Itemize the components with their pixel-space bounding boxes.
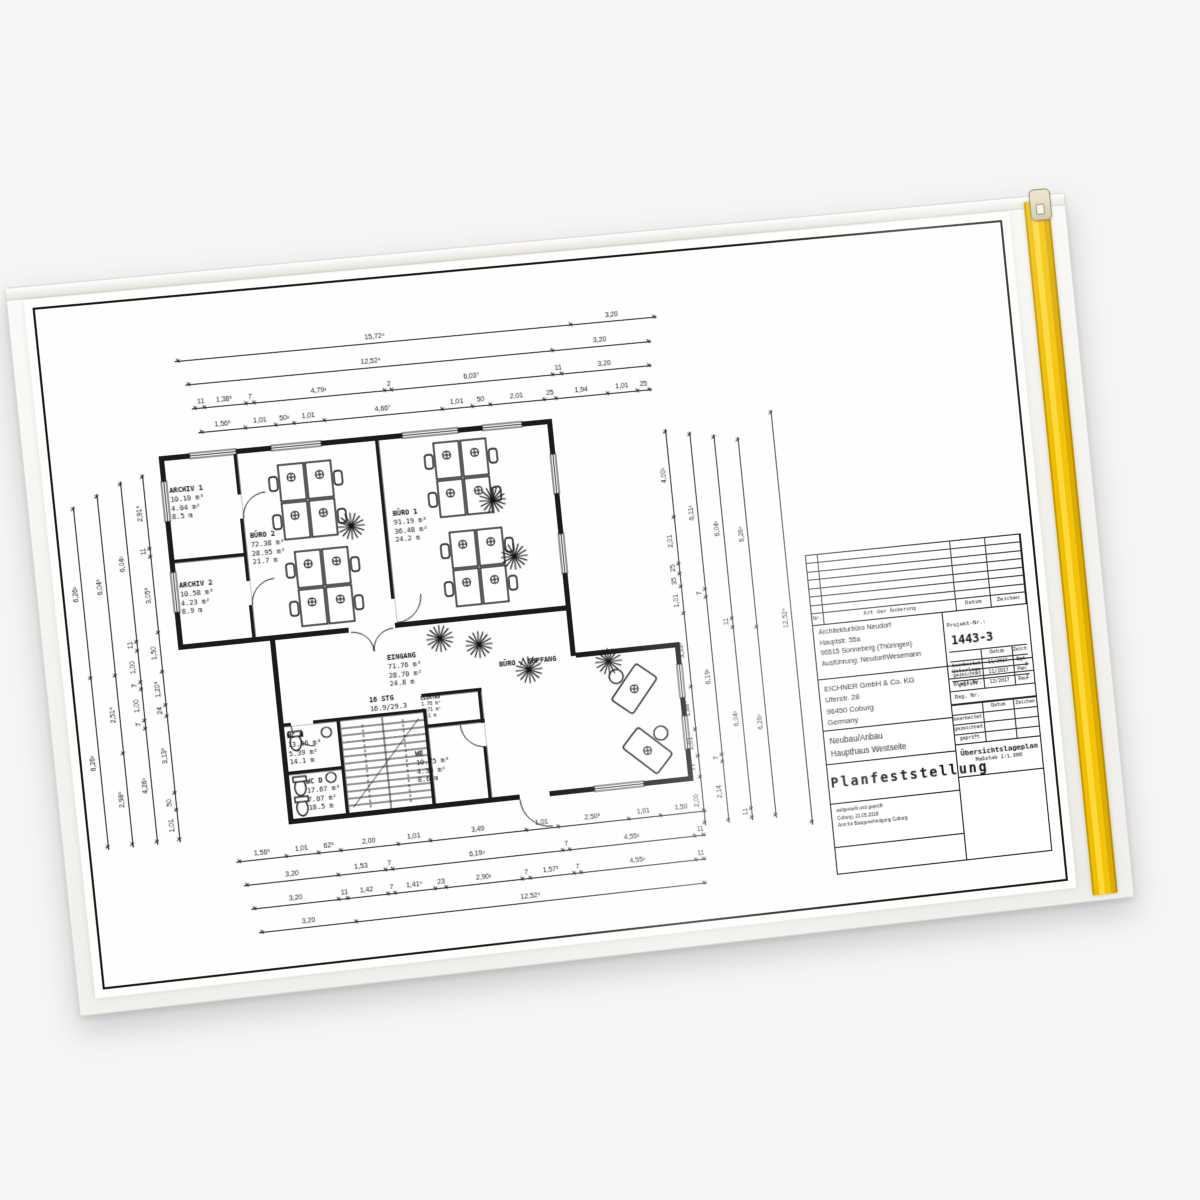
dim-tick: × — [559, 847, 566, 855]
dim-tick: × — [200, 404, 207, 412]
dim-tick: × — [70, 506, 78, 513]
dim-tick: × — [337, 847, 344, 855]
dim-tick: × — [646, 386, 653, 394]
dim-label: 1,01 — [528, 819, 555, 830]
dim-tick: × — [549, 371, 556, 379]
dim-tick: × — [87, 675, 95, 682]
reception-desks — [595, 649, 686, 779]
dim-tick: × — [700, 855, 707, 863]
dim-label: 1,01 — [687, 733, 697, 754]
approvals-table: Datum Zeichen bearbeitet 11/2017 Bgt gez… — [949, 644, 1030, 691]
project-number-value: 1443-3 — [951, 630, 994, 647]
dim-label: 50 — [474, 397, 487, 406]
dim-label: 1,01 — [630, 808, 657, 819]
plan-sheet: ARCHIV 1 10.10 m³ 4.04 m² 8.5 m ARCHIV 2… — [23, 211, 1076, 998]
dim-tick: × — [645, 362, 652, 370]
dim-tick: × — [710, 434, 718, 441]
dim-tick: × — [695, 752, 703, 759]
dim-tick: × — [725, 817, 733, 824]
dim-tick: × — [191, 405, 198, 413]
dim-tick: × — [153, 838, 161, 845]
dim-tick: × — [772, 811, 780, 818]
dim-tick: × — [767, 409, 775, 416]
dim-tick: × — [335, 896, 342, 904]
dim-tick: × — [112, 672, 120, 679]
dim-tick: × — [134, 648, 142, 655]
dim-tick: × — [174, 357, 181, 365]
plan-protection-sleeve: ARCHIV 1 10.10 m³ 4.04 m² 8.5 m ARCHIV 2… — [4, 193, 1134, 1017]
dim-tick: × — [718, 751, 726, 758]
dim-tick: × — [526, 875, 533, 883]
room-label-eingang: EINGANG 71.76 m³ 28.70 m² 24.8 m — [387, 651, 424, 690]
dim-tick: × — [321, 417, 328, 425]
dim-tick: × — [142, 725, 150, 732]
dim-tick: × — [387, 386, 394, 394]
dim-tick: × — [558, 370, 565, 378]
dim-tick: × — [139, 474, 147, 481]
room-label-archiv2: ARCHIV 2 10.58 m³ 4.23 m² 8.9 m — [179, 578, 216, 617]
dim-tick: × — [700, 831, 707, 839]
dim-tick: × — [117, 481, 125, 488]
dim-label: 1,01 — [288, 845, 315, 856]
dim-tick: × — [729, 624, 737, 631]
dim-tick: × — [198, 429, 205, 437]
room-label-wcd: WC D 17.67 m³ 7.07 m² 18.5 m — [306, 775, 343, 814]
dim-tick: × — [120, 750, 128, 757]
room-label-buero2: BÜRO 2 72.38 m³ 28.95 m² 21.7 m — [250, 529, 287, 568]
dim-tick: × — [650, 313, 657, 321]
dim-tick: × — [243, 882, 250, 890]
dim-tick: × — [703, 594, 711, 601]
dim-tick: × — [242, 424, 249, 432]
dim-tick: × — [432, 885, 439, 893]
dim-tick: × — [137, 679, 145, 686]
dim-label: 1,20⁸ — [154, 675, 165, 703]
dim-label: 1,00 — [133, 693, 144, 719]
dim-label: 1,01 — [610, 383, 635, 394]
dim-tick: × — [155, 629, 163, 636]
dim-label: 1,01 — [168, 814, 179, 838]
dim-tick: × — [392, 890, 399, 898]
dim-tick: × — [541, 396, 548, 404]
dim-tick: × — [688, 683, 696, 690]
title-block: Nr. Art der Änderung Datum Zeichen Archi… — [805, 533, 1053, 874]
project-number-label: Projekt-Nr.: — [947, 619, 987, 630]
dim-tick: × — [381, 866, 388, 874]
dim-label: 77 — [690, 759, 700, 775]
dim-label: 1,01 — [673, 590, 683, 611]
dim-label: 50² — [278, 415, 291, 424]
room-label-archiv1: ARCHIV 1 10.10 m³ 4.04 m² 8.5 m — [169, 484, 206, 523]
dim-tick: × — [662, 428, 670, 435]
dim-tick: × — [93, 493, 101, 500]
dim-tick: × — [680, 610, 688, 617]
room-label-we: WE 10.75 m³ 4.30 m² 8.6 m — [415, 747, 451, 786]
dim-tick: × — [141, 718, 149, 725]
dim-tick: × — [236, 858, 243, 866]
dim-tick: × — [697, 774, 705, 781]
dim-tick: × — [625, 816, 632, 824]
dim-tick: × — [692, 856, 699, 864]
dim-tick: × — [162, 702, 170, 709]
dim-tick: × — [159, 669, 167, 676]
dim-tick: × — [645, 338, 652, 346]
dim-tick: × — [686, 431, 694, 438]
project-number-block: Projekt-Nr.:1443-3 Datum Zeichen bearbei… — [941, 603, 1032, 667]
dim-tick: × — [570, 870, 577, 878]
dim-tick: × — [283, 853, 290, 861]
dim-tick: × — [729, 615, 737, 622]
dim-tick: × — [675, 560, 683, 567]
dim-tick: × — [552, 395, 559, 403]
dim-tick: × — [163, 713, 171, 720]
dim-tick: × — [104, 844, 112, 851]
dim-tick: × — [129, 841, 137, 848]
dim-tick: × — [567, 321, 574, 329]
dim-tick: × — [250, 399, 257, 407]
dim-label: 1,01 — [247, 417, 272, 428]
dim-tick: × — [734, 436, 742, 443]
dim-tick: × — [185, 381, 192, 389]
dim-tick: × — [577, 869, 584, 877]
dim-tick: × — [242, 400, 249, 408]
dim-tick: × — [748, 805, 756, 812]
dim-tick: × — [344, 895, 351, 903]
dim-tick: × — [251, 905, 258, 913]
dim-tick: × — [384, 890, 391, 898]
dim-tick: × — [701, 879, 708, 887]
dim-tick: × — [258, 929, 265, 937]
room-label-elektro: ELEKTRO 1.78 m³ 0.71 m² 1.1 m — [421, 695, 443, 721]
room-label-wch: WC H 13.46 m³ 5.39 m² 14.1 m — [287, 729, 324, 768]
dim-tick: × — [701, 819, 709, 826]
dim-tick: × — [692, 726, 700, 733]
dim-tick: × — [146, 546, 154, 553]
dim-tick: × — [272, 421, 279, 429]
dim-label: 1,01 — [296, 412, 321, 423]
dim-tick: × — [290, 420, 297, 428]
dim-tick: × — [671, 514, 679, 521]
dim-tick: × — [315, 849, 322, 857]
dim-tick: × — [176, 836, 184, 843]
dim-label: 1,00 — [129, 654, 140, 680]
dim-label: 1,01 — [400, 833, 427, 844]
dim-tick: × — [809, 818, 817, 825]
dim-tick: × — [656, 812, 663, 820]
room-label-buero1: BÜRO 1 91.19 m³ 36.48 m² 24.2 m — [392, 507, 429, 546]
dim-label: 1,01 — [444, 398, 469, 409]
dim-label: 62⁵ — [320, 842, 337, 852]
dim-tick: × — [749, 814, 757, 821]
zipper-slider-icon — [1028, 188, 1052, 221]
product-photo: ARCHIV 1 10.10 m³ 4.04 m² 8.5 m ARCHIV 2… — [0, 0, 1200, 1200]
dim-tick: × — [719, 759, 727, 766]
